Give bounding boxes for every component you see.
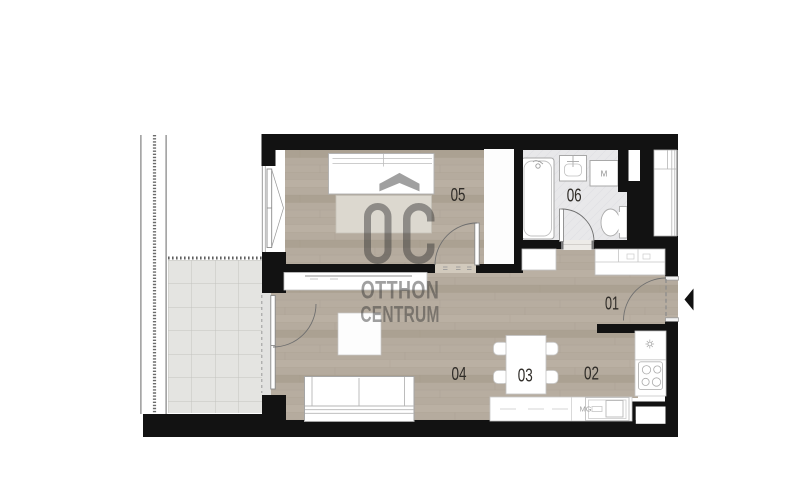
- svg-text:04: 04: [452, 363, 467, 384]
- svg-text:05: 05: [451, 184, 466, 205]
- svg-text:06: 06: [567, 184, 582, 205]
- svg-text:01: 01: [605, 292, 619, 313]
- svg-text:CENTRUM: CENTRUM: [360, 302, 439, 328]
- svg-text:OTTHON: OTTHON: [361, 276, 440, 305]
- svg-text:02: 02: [584, 363, 599, 384]
- svg-text:MG: MG: [580, 405, 592, 414]
- svg-text:M: M: [601, 170, 608, 179]
- svg-text:03: 03: [518, 365, 533, 386]
